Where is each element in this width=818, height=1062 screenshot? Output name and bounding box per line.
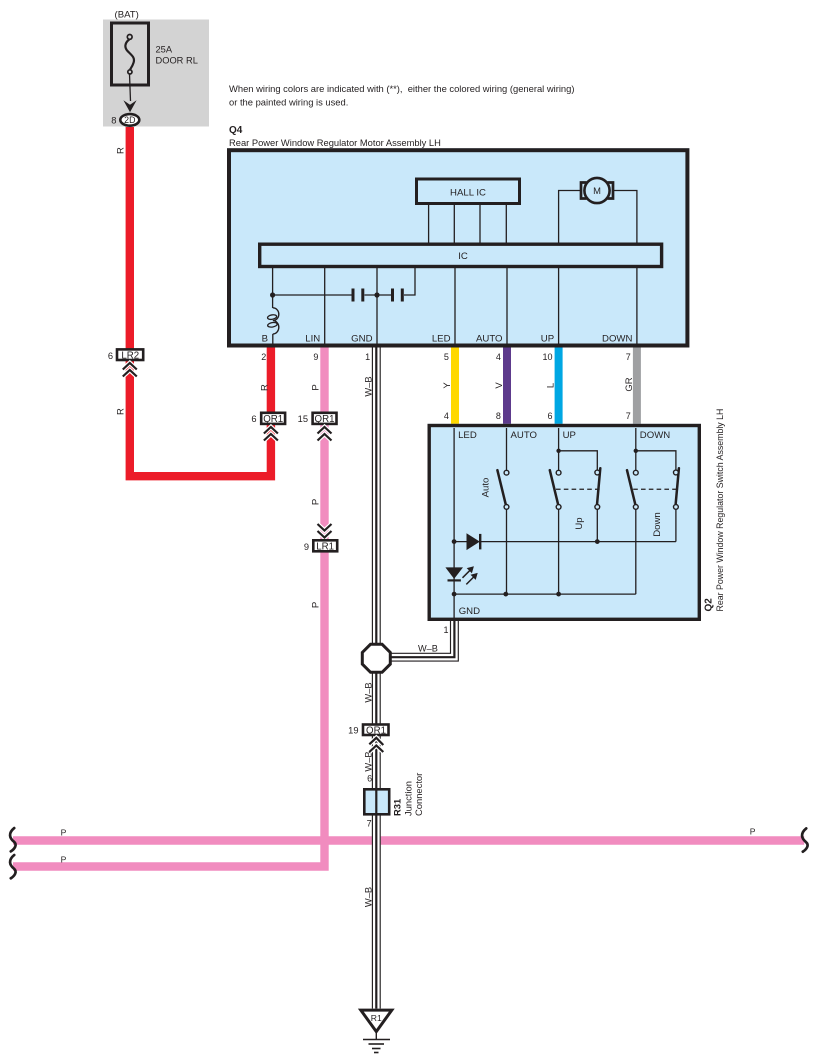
- svg-text:L: L: [545, 383, 556, 388]
- svg-text:Down: Down: [652, 512, 663, 537]
- svg-text:4: 4: [444, 411, 449, 421]
- svg-text:QR1: QR1: [315, 414, 335, 425]
- svg-text:2: 2: [261, 352, 266, 362]
- svg-text:Connector: Connector: [413, 773, 424, 816]
- svg-text:4: 4: [496, 352, 501, 362]
- svg-text:Auto: Auto: [480, 478, 491, 498]
- svg-text:7: 7: [626, 411, 631, 421]
- svg-text:P: P: [311, 499, 322, 505]
- svg-text:15: 15: [298, 414, 308, 424]
- svg-text:IC: IC: [458, 251, 468, 262]
- svg-text:P: P: [311, 602, 322, 608]
- svg-text:8: 8: [496, 411, 501, 421]
- svg-text:9: 9: [313, 352, 318, 362]
- svg-text:Rear Power Window Regulator Sw: Rear Power Window Regulator Switch Assem…: [715, 409, 725, 612]
- svg-text:1: 1: [443, 625, 448, 635]
- svg-text:AUTO: AUTO: [511, 430, 537, 441]
- svg-text:LED: LED: [432, 334, 451, 345]
- svg-text:DOWN: DOWN: [602, 334, 632, 345]
- svg-text:W–B: W–B: [364, 751, 374, 771]
- svg-text:25A: 25A: [156, 45, 173, 55]
- svg-text:W–B: W–B: [364, 887, 374, 907]
- svg-text:DOWN: DOWN: [640, 430, 670, 441]
- svg-text:or the painted wiring is used.: or the painted wiring is used.: [229, 97, 348, 108]
- svg-text:B: B: [262, 334, 268, 345]
- svg-text:19: 19: [348, 726, 358, 736]
- svg-text:V: V: [494, 382, 505, 389]
- svg-text:6: 6: [108, 351, 113, 361]
- svg-text:M: M: [593, 185, 601, 196]
- svg-text:LIN: LIN: [305, 334, 320, 345]
- svg-text:6: 6: [547, 411, 552, 421]
- svg-text:6: 6: [251, 414, 256, 424]
- svg-text:R: R: [116, 147, 127, 154]
- svg-text:P: P: [61, 827, 67, 837]
- svg-text:R31: R31: [392, 799, 403, 816]
- svg-text:P: P: [750, 827, 756, 837]
- svg-text:LED: LED: [458, 430, 477, 441]
- svg-text:GR: GR: [624, 377, 635, 391]
- svg-text:W–B: W–B: [418, 644, 438, 654]
- svg-text:HALL IC: HALL IC: [450, 188, 486, 199]
- svg-text:LR2: LR2: [121, 350, 139, 361]
- svg-text:R1: R1: [371, 1013, 382, 1023]
- svg-text:UP: UP: [563, 430, 576, 441]
- svg-text:Rear Power Window Regulator Mo: Rear Power Window Regulator Motor Assemb…: [229, 138, 441, 148]
- svg-text:1: 1: [365, 352, 370, 362]
- svg-text:Q4: Q4: [229, 125, 243, 136]
- svg-text:QR1: QR1: [263, 414, 283, 425]
- svg-text:8: 8: [111, 114, 116, 125]
- svg-text:LR1: LR1: [316, 541, 334, 552]
- svg-text:W–B: W–B: [364, 682, 374, 702]
- svg-text:Junction: Junction: [403, 781, 414, 816]
- svg-text:5: 5: [444, 352, 449, 362]
- svg-text:(BAT): (BAT): [115, 10, 139, 21]
- svg-text:7: 7: [367, 819, 372, 829]
- svg-text:6: 6: [367, 774, 372, 784]
- svg-text:P: P: [61, 854, 67, 864]
- svg-text:2D: 2D: [124, 115, 135, 125]
- svg-text:9: 9: [304, 542, 309, 552]
- svg-text:GND: GND: [351, 334, 372, 345]
- svg-text:When wiring colors are indicat: When wiring colors are indicated with (*…: [229, 83, 574, 94]
- svg-text:AUTO: AUTO: [476, 334, 502, 345]
- svg-text:Q2: Q2: [704, 598, 715, 612]
- svg-text:P: P: [311, 384, 322, 390]
- svg-text:UP: UP: [541, 334, 554, 345]
- svg-text:10: 10: [542, 352, 552, 362]
- svg-text:Y: Y: [442, 382, 453, 389]
- svg-text:Up: Up: [574, 517, 585, 529]
- svg-text:7: 7: [626, 352, 631, 362]
- svg-text:DOOR RL: DOOR RL: [156, 56, 198, 66]
- svg-text:GND: GND: [459, 606, 480, 617]
- svg-text:R: R: [260, 384, 271, 391]
- svg-text:R: R: [116, 408, 127, 415]
